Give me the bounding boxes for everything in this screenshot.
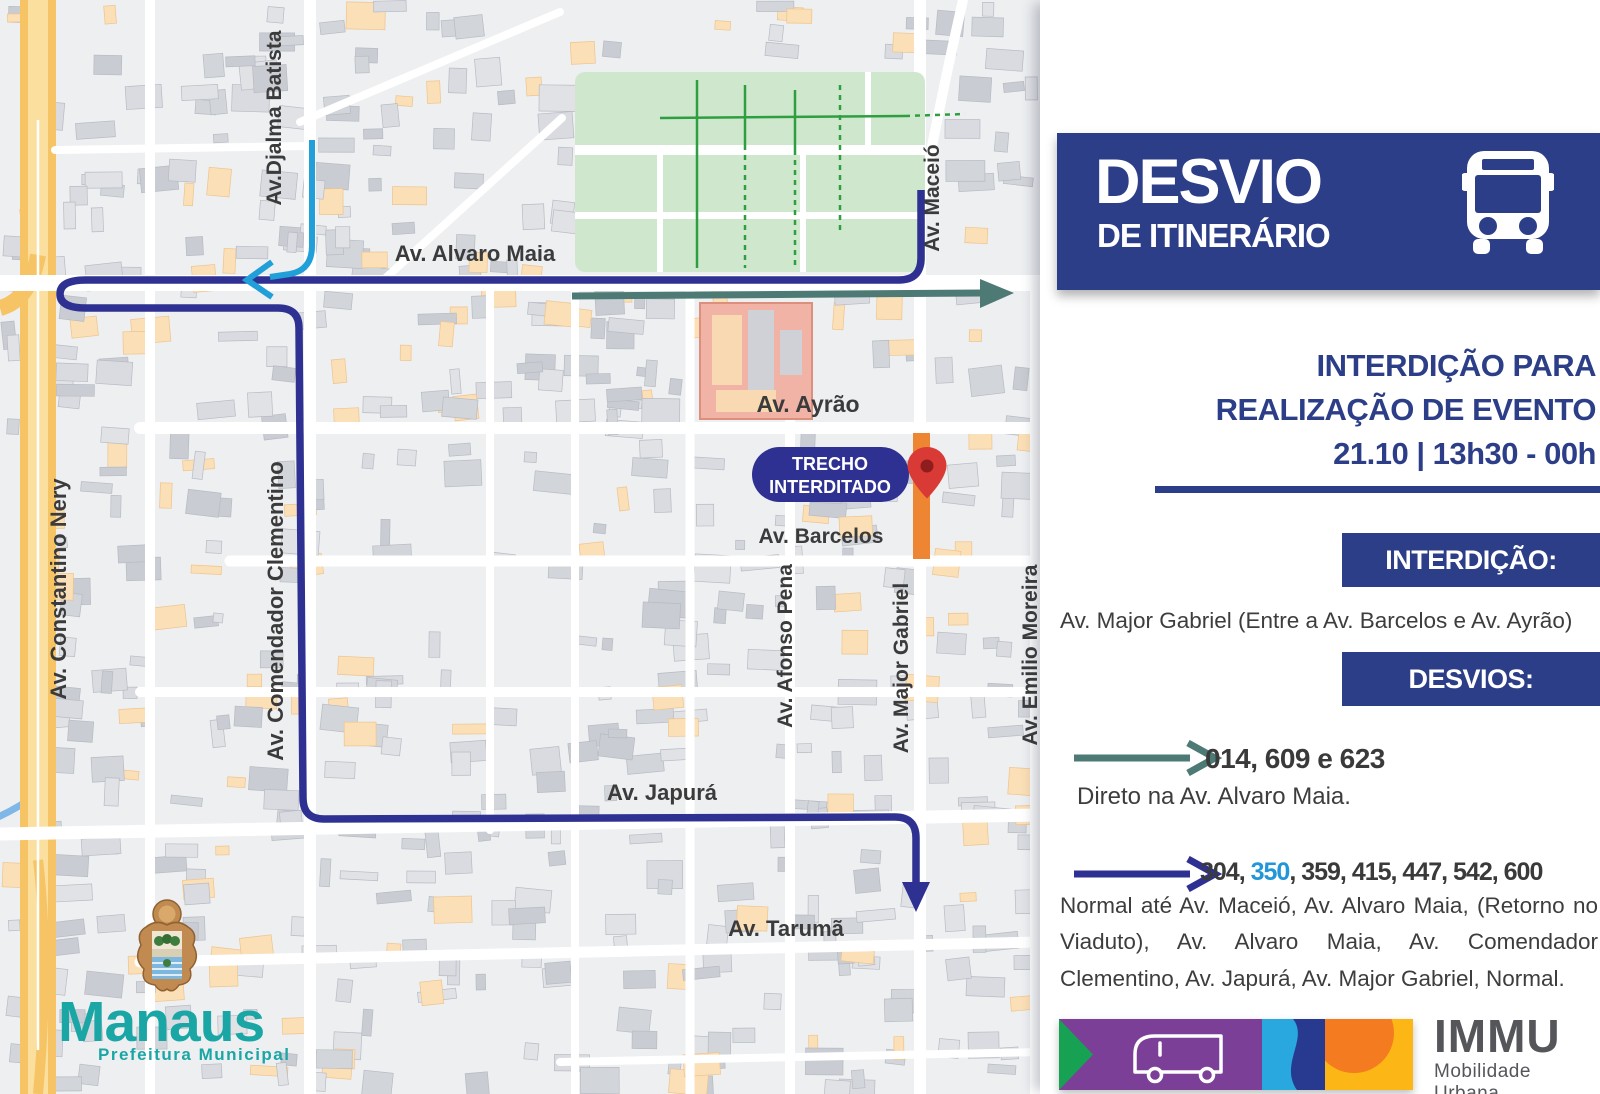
street-label-emilio-moreira: Av. Emilio Moreira [1019, 564, 1040, 745]
city-map: TRECHO INTERDITADO Av. Alvaro MaiaAv.Dja… [0, 0, 1040, 1094]
detour2-description: Normal até Av. Maceió, Av. Alvaro Maia, … [1060, 888, 1598, 997]
detour1-arrow-icon [1072, 740, 1222, 776]
closure-badge-line1: TRECHO [792, 454, 868, 474]
event-line2: REALIZAÇÃO DE EVENTO [1054, 388, 1596, 432]
immu-tagline: Mobilidade Urbana [1434, 1061, 1600, 1094]
street-label-maceio: Av. Maceió [921, 144, 944, 251]
closure-badge: TRECHO INTERDITADO [752, 447, 909, 502]
closure-badge-line2: INTERDITADO [769, 477, 891, 497]
street-label-alvaro-maia: Av. Alvaro Maia [395, 241, 556, 266]
direct-route-line-teal [572, 293, 982, 296]
footer-sun-tile [1314, 1019, 1413, 1090]
map-canvas: TRECHO INTERDITADO Av. Alvaro MaiaAv.Dja… [0, 0, 1040, 1094]
detour2-routes-prefix: 304, [1200, 858, 1251, 886]
park-area [575, 72, 965, 272]
event-info: INTERDIÇÃO PARA REALIZAÇÃO DE EVENTO 21.… [1054, 344, 1596, 476]
detour2-routes-suffix: , 359, 415, 447, 542, 600 [1289, 858, 1542, 886]
street-label-japura: Av. Japurá [607, 780, 718, 805]
bus-icon [1462, 149, 1554, 259]
desvios-badge: DESVIOS: [1342, 652, 1600, 706]
header-subtitle: DE ITINERÁRIO [1097, 219, 1330, 252]
street-label-djalma-batista: Av.Djalma Batista [263, 30, 286, 205]
detour2-routes-highlight: 350 [1251, 858, 1290, 886]
event-line1: INTERDIÇÃO PARA [1054, 344, 1596, 388]
immu-wordmark: IMMU [1434, 1012, 1600, 1060]
manaus-tagline: Prefeitura Municipal [98, 1045, 290, 1064]
street-label-major-gabriel: Av. Major Gabriel [890, 583, 913, 753]
immu-logo: IMMU Mobilidade Urbana [1434, 1012, 1600, 1094]
street-label-barcelos: Av. Barcelos [759, 525, 884, 548]
event-datetime: 21.10 | 13h30 - 00h [1054, 432, 1596, 476]
info-panel: DESVIO DE ITINERÁRIO INTERDIÇÃO PARA REA… [1040, 0, 1600, 1094]
street-label-ayrao: Av. Ayrão [756, 391, 859, 417]
header-title: DESVIO [1095, 151, 1321, 214]
footer-brand-strip [1059, 1019, 1413, 1090]
detour1-routes: 014, 609 e 623 [1205, 743, 1385, 775]
event-underline [1155, 486, 1600, 493]
detour2-routes: 304, 350, 359, 415, 447, 542, 600 [1200, 858, 1542, 887]
transit-detour-flyer: TRECHO INTERDITADO Av. Alvaro MaiaAv.Dja… [0, 0, 1600, 1094]
street-label-afonso-pena: Av. Afonso Pena [774, 564, 797, 728]
detour1-description: Direto na Av. Alvaro Maia. [1077, 779, 1597, 815]
interdicao-description: Av. Major Gabriel (Entre a Av. Barcelos … [1060, 604, 1598, 638]
street-label-taruma: Av. Tarumã [728, 916, 845, 941]
interdicao-badge: INTERDIÇÃO: [1342, 533, 1600, 587]
panel-header: DESVIO DE ITINERÁRIO [1057, 133, 1600, 290]
street-label-comendador-clementino: Av. Comendador Clementino [263, 461, 288, 760]
street-label-constantino-nery: Av. Constantino Nery [46, 478, 71, 700]
